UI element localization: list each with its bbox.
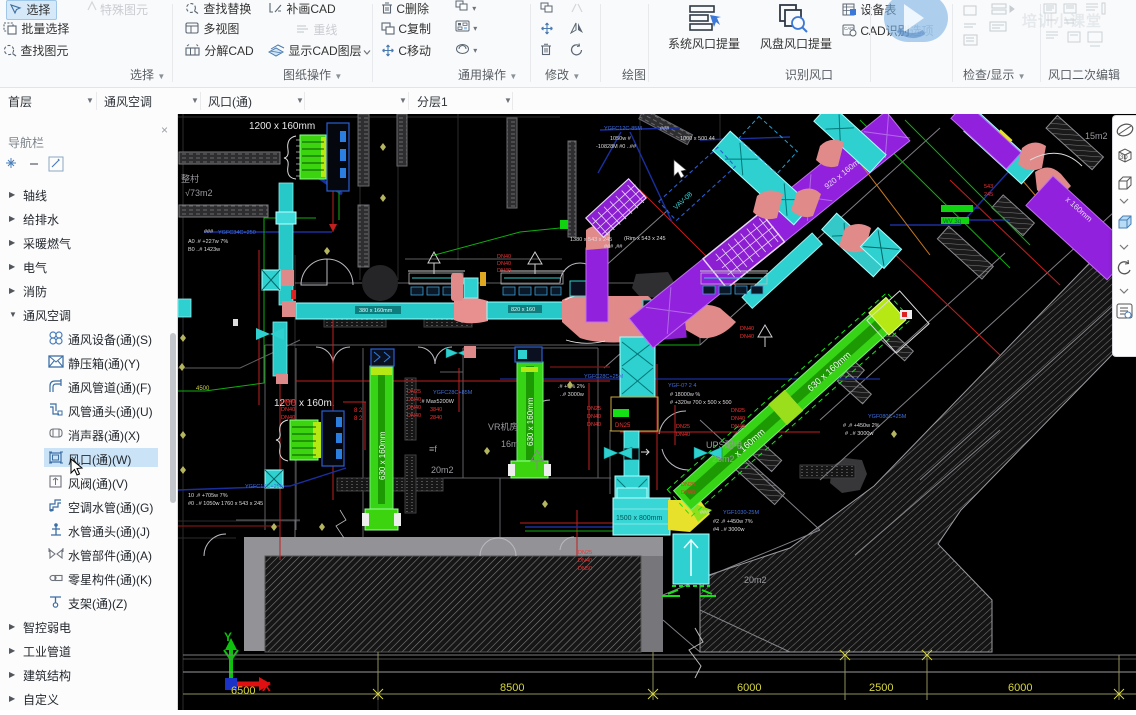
svg-text:1380 x 543 x 245: 1380 x 543 x 245: [570, 237, 612, 243]
svg-text:8500: 8500: [500, 682, 524, 694]
svg-text:DN40: DN40: [740, 334, 754, 340]
svg-text:### ,##: ### ,##: [604, 244, 623, 250]
svg-text:VR机房: VR机房: [488, 421, 519, 432]
svg-text:4500: 4500: [196, 386, 210, 392]
svg-text:DN40: DN40: [281, 415, 295, 421]
svg-text:DN25: DN25: [615, 423, 631, 429]
svg-text:DN40: DN40: [731, 424, 745, 430]
svg-text:YGFC34C+250: YGFC34C+250: [218, 230, 256, 236]
svg-text:Y: Y: [224, 630, 232, 644]
svg-text:DN40: DN40: [740, 326, 754, 332]
svg-text:380 x 160mm: 380 x 160mm: [359, 308, 393, 314]
svg-text:# ..# 3000w: # ..# 3000w: [845, 431, 873, 437]
svg-text:630 x 160mm: 630 x 160mm: [378, 431, 387, 480]
svg-text:1500 x 800mm: 1500 x 800mm: [616, 515, 662, 522]
svg-text:YGF080C+25M: YGF080C+25M: [868, 414, 907, 420]
svg-text:YGFC28C+85M: YGFC28C+85M: [433, 390, 473, 396]
svg-text:DN25: DN25: [407, 389, 421, 395]
svg-text:20m2: 20m2: [431, 465, 454, 475]
svg-text:WV 3q: WV 3q: [943, 219, 961, 225]
svg-text:820 x 160: 820 x 160: [511, 307, 535, 313]
svg-text:≡f: ≡f: [429, 444, 437, 454]
svg-text:8 2: 8 2: [354, 408, 363, 414]
svg-text:# 18000w %: # 18000w %: [670, 392, 700, 398]
svg-text:1000 x 500 44: 1000 x 500 44: [680, 136, 715, 142]
svg-text:DN40: DN40: [731, 416, 745, 422]
svg-text:YGFC12C-85M: YGFC12C-85M: [604, 126, 642, 132]
svg-text:16m: 16m: [501, 439, 519, 449]
svg-text:√73m2: √73m2: [185, 188, 212, 198]
svg-text:#0 ..# 1050w 1760 x 543: #0 ..# 1050w 1760 x 543 x 245: [188, 501, 263, 507]
svg-text:DN40: DN40: [587, 414, 601, 420]
svg-text:15m2: 15m2: [1085, 131, 1108, 141]
svg-text:DN40: DN40: [407, 405, 421, 411]
svg-text:YGF1030-25M: YGF1030-25M: [723, 510, 759, 516]
svg-text:DN40: DN40: [407, 397, 421, 403]
svg-text:3D: 3D: [1120, 155, 1128, 161]
svg-text:3840: 3840: [430, 407, 442, 413]
svg-text:# .# +450w 2%: # .# +450w 2%: [843, 423, 880, 429]
svg-text:整村: 整村: [181, 173, 199, 184]
svg-text:6000: 6000: [737, 682, 761, 694]
svg-text:543: 543: [984, 184, 993, 190]
svg-text:DN25: DN25: [731, 408, 745, 414]
svg-text:(Rim x 543 x 245: (Rim x 543 x 245: [624, 236, 666, 242]
svg-text:DN40: DN40: [281, 407, 295, 413]
svg-text:# +320w 700 x 500 x 500: # +320w 700 x 500 x 500: [670, 400, 732, 406]
svg-text:DN40: DN40: [281, 399, 295, 405]
svg-text:25m2: 25m2: [712, 454, 735, 464]
svg-text:###: ###: [700, 510, 710, 516]
svg-text:DN40: DN40: [497, 268, 511, 274]
svg-text:8 2: 8 2: [354, 416, 363, 422]
svg-text:YGFC12C+25M: YGFC12C+25M: [245, 484, 285, 490]
svg-text:6000: 6000: [1008, 682, 1032, 694]
svg-text:DN50: DN50: [578, 566, 592, 572]
svg-text:1050w #: 1050w #: [610, 136, 632, 142]
svg-text:DN40: DN40: [407, 413, 421, 419]
svg-text:UPS配电: UPS配电: [706, 439, 743, 450]
svg-text:1200 x 160mm: 1200 x 160mm: [249, 121, 315, 132]
svg-text:DN25: DN25: [587, 406, 601, 412]
svg-text:X: X: [262, 679, 271, 694]
svg-text:#4 ..# 3000w: #4 ..# 3000w: [713, 527, 745, 533]
svg-text:.# Max5200W: .# Max5200W: [420, 399, 455, 405]
svg-text:B0 ..# 1423w: B0 ..# 1423w: [188, 247, 220, 253]
svg-text:YGF-0? 2 4: YGF-0? 2 4: [668, 383, 696, 389]
svg-text:DN40: DN40: [676, 432, 690, 438]
svg-text:###: ###: [204, 229, 214, 235]
svg-text:A0 .# +227w 7%: A0 .# +227w 7%: [188, 239, 228, 245]
svg-text:2500: 2500: [869, 682, 893, 694]
svg-text:DN40: DN40: [497, 254, 511, 260]
svg-text:20m2: 20m2: [744, 575, 767, 585]
svg-text:..# 3000w: ..# 3000w: [560, 392, 584, 398]
svg-text:245: 245: [984, 192, 993, 198]
svg-text:DN40: DN40: [497, 261, 511, 267]
svg-text:#2 .# +450w 7%: #2 .# +450w 7%: [713, 519, 753, 525]
svg-text:DN40: DN40: [681, 490, 695, 496]
svg-text:DN25: DN25: [681, 482, 695, 488]
svg-text:6500: 6500: [231, 685, 255, 697]
svg-text:DN25: DN25: [578, 550, 592, 556]
svg-text:10 .# +705w 7%: 10 .# +705w 7%: [188, 493, 228, 499]
svg-text:DN40: DN40: [578, 558, 592, 564]
svg-text:630 x 160mm: 630 x 160mm: [526, 397, 535, 446]
svg-text:###: ###: [660, 126, 670, 132]
svg-text:YGFC28C+25M: YGFC28C+25M: [584, 374, 624, 380]
svg-text:DN40: DN40: [587, 422, 601, 428]
svg-text:DN25: DN25: [676, 424, 690, 430]
svg-text:-10828M #0 ..##: -10828M #0 ..##: [596, 144, 637, 150]
svg-text:2840: 2840: [430, 415, 442, 421]
